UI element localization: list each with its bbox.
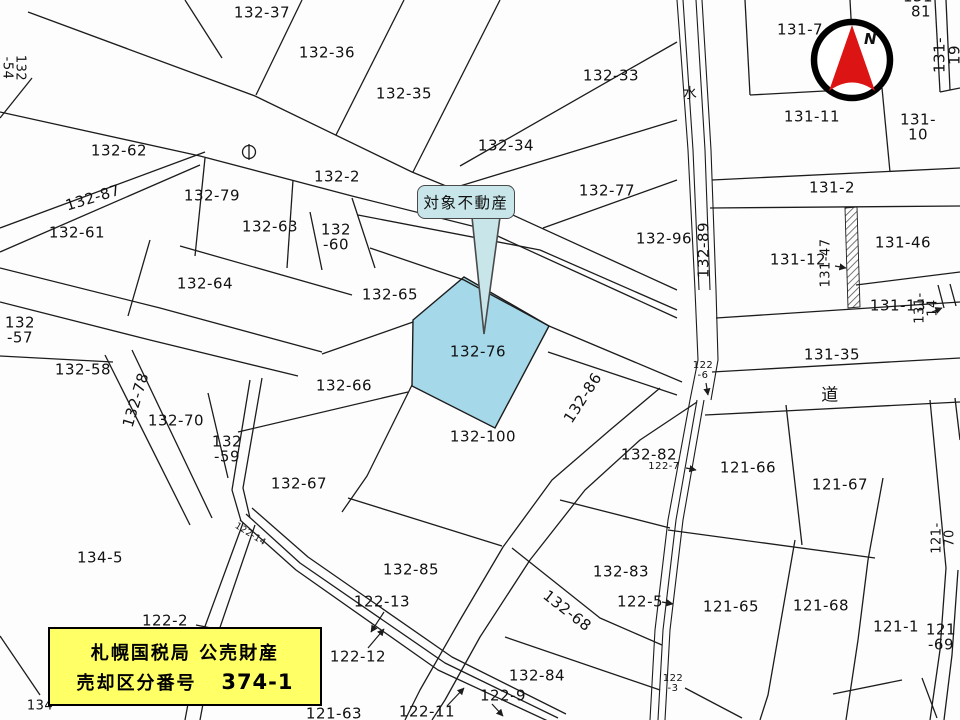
notice-line2-label: 売却区分番号 — [76, 673, 196, 694]
notice-sale-number: 374-1 — [221, 670, 293, 694]
parcel-label-132-77: 132-77 — [579, 184, 635, 199]
parcel-label-132-60: 132 -60 — [321, 222, 351, 251]
parcel-label-131-19: 131-19 — [932, 37, 960, 73]
parcel-label-122-11: 122-11 — [399, 705, 455, 720]
parcel-label-132-83: 132-83 — [593, 565, 649, 580]
parcel-label-132-66: 132-66 — [316, 379, 372, 394]
parcel-label-121-67: 121-67 — [812, 478, 868, 493]
parcel-label-132-67: 132-67 — [271, 477, 327, 492]
cadastral-map: N 132-37132-36132-35132-33132-34132-6213… — [0, 0, 960, 720]
parcel-label-132-86: 132-86 — [562, 370, 605, 425]
parcel-label-122-13: 122-13 — [354, 595, 410, 610]
notice-line1: 札幌国税局 公売財産 — [91, 639, 279, 665]
parcel-label-132-68: 132-68 — [540, 588, 593, 634]
parcel-label-132-87: 132-87 — [64, 183, 122, 213]
parcel-label-132-70: 132-70 — [148, 414, 204, 429]
parcel-label-道: 道 — [821, 388, 839, 405]
parcel-label-122-6: 122 -6 — [693, 361, 714, 381]
parcel-label-122-3: 122 -3 — [663, 674, 684, 694]
parcel-label-132-2: 132-2 — [314, 170, 360, 185]
parcel-label-121-68: 121-68 — [793, 599, 849, 614]
parcel-label-132-76: 132-76 — [450, 345, 506, 360]
parcel-label-131-46: 131-46 — [875, 236, 931, 251]
parcel-label-134-5: 134-5 — [77, 551, 123, 566]
parcel-label-121-63: 121-63 — [306, 707, 362, 720]
target-property-callout: 対象不動産 — [417, 185, 515, 219]
parcel-label-132-84: 132-84 — [509, 669, 565, 684]
parcel-label-122-14: 122-14 — [233, 522, 267, 548]
parcel-label-131-47: 131-47 — [821, 238, 834, 287]
parcel-label-121-70: 121-70 — [931, 522, 956, 554]
labels-layer: 132-37132-36132-35132-33132-34132-62132-… — [0, 0, 960, 720]
parcel-label-132-57: 132 -57 — [5, 315, 35, 344]
parcel-label-132-65: 132-65 — [362, 288, 418, 303]
parcel-label-132-35: 132-35 — [376, 87, 432, 102]
parcel-label-132-100: 132-100 — [450, 430, 516, 445]
parcel-label-131-11: 131-11 — [784, 110, 840, 125]
parcel-label-131-10: 131-10 — [897, 112, 939, 141]
parcel-label-132-78: 132-78 — [121, 371, 151, 429]
parcel-label-132-79: 132-79 — [184, 189, 240, 204]
parcel-label-131-81: 131-81 — [902, 0, 941, 19]
parcel-label-132-64: 132-64 — [177, 277, 233, 292]
parcel-label-122-5: 122-5 — [617, 595, 663, 610]
parcel-label-131-7: 131-7 — [777, 23, 823, 38]
callout-label: 対象不動産 — [423, 191, 508, 213]
parcel-label-121-1: 121-1 — [873, 620, 919, 635]
parcel-label-121-65: 121-65 — [703, 600, 759, 615]
parcel-label-132-96: 132-96 — [636, 232, 692, 247]
parcel-label-132-85: 132-85 — [383, 563, 439, 578]
parcel-label-132-61: 132-61 — [49, 226, 105, 241]
parcel-label-132-37: 132-37 — [234, 6, 290, 21]
parcel-label-131-14: 131-14 — [914, 292, 939, 325]
parcel-label-122-7: 122-7 — [648, 462, 680, 472]
parcel-label-132-54: 132 -54 — [0, 55, 25, 81]
parcel-label-132-59: 132 -59 — [212, 434, 242, 463]
auction-notice-box: 札幌国税局 公売財産 売却区分番号 374-1 — [48, 627, 322, 706]
parcel-label-121-66: 121-66 — [720, 461, 776, 476]
notice-line2: 売却区分番号 374-1 — [76, 669, 293, 695]
parcel-label-122-12: 122-12 — [330, 650, 386, 665]
parcel-label-122-9: 122-9 — [480, 689, 526, 704]
parcel-label-132-34: 132-34 — [478, 139, 534, 154]
parcel-label-132-58: 132-58 — [55, 363, 111, 378]
parcel-label-132-62: 132-62 — [91, 144, 147, 159]
parcel-label-水: 水 — [683, 88, 698, 102]
parcel-label-132-89: 132-89 — [697, 222, 712, 278]
parcel-label-131-35: 131-35 — [804, 348, 860, 363]
parcel-label-132-36: 132-36 — [299, 46, 355, 61]
parcel-label-132-33: 132-33 — [583, 69, 639, 84]
parcel-label-132-63: 132-63 — [242, 220, 298, 235]
parcel-label-121-69: 121 -69 — [926, 622, 956, 651]
parcel-label-131-2: 131-2 — [809, 181, 855, 196]
